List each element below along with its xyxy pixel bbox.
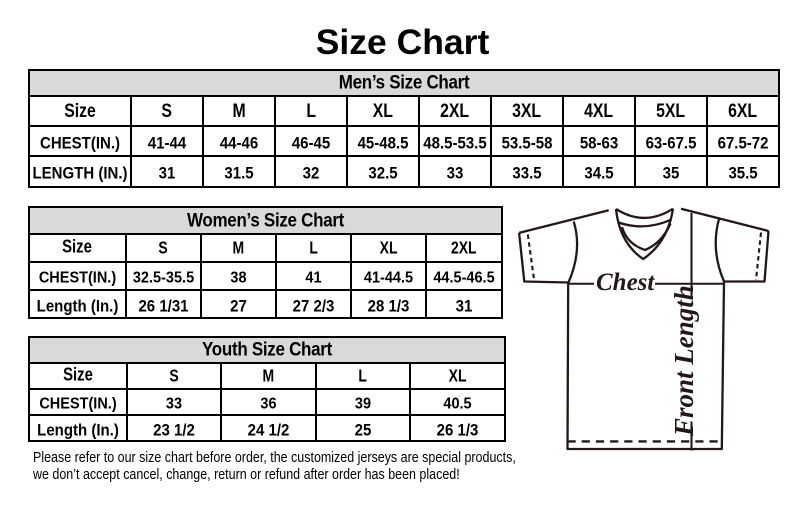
svg-text:Front Length: Front Length [669, 285, 699, 437]
svg-text:Chest: Chest [596, 269, 655, 296]
